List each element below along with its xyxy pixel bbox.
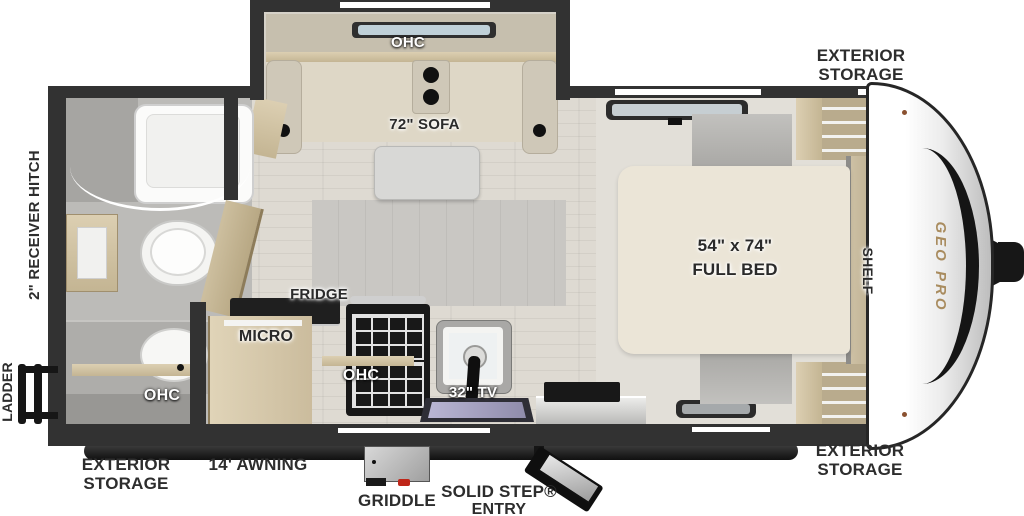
console-cupholder-1 [423,67,439,83]
kitchen-ohc-cabinet [322,356,414,366]
ladder-rung-bottom [18,412,58,419]
label-kitchen-ohc: OHC [333,367,389,385]
entry-grab-rail [544,382,620,402]
cap-marker-light-bottom [902,412,907,417]
bathroom-faucet [177,364,184,371]
label-tv: 32" TV [440,385,506,402]
label-griddle: GRIDDLE [352,491,442,510]
stove-handle [350,296,426,304]
label-ladder: LADDER [0,360,16,424]
label-entry-line2: ENTRY [437,501,561,516]
wall-rear [48,86,66,446]
sofa-console [412,60,450,114]
slideout-exterior-window-mark [340,2,490,8]
label-slideout-ohc: OHC [382,35,434,52]
cap-marker-light-top [902,110,907,115]
label-receiver-hitch: 2" RECEIVER HITCH [27,145,45,305]
label-shelf: SHELF [857,236,875,306]
label-fridge: FRIDGE [284,287,354,304]
slideout-wall-right [556,0,570,100]
medicine-cabinet-mirror [77,227,107,279]
griddle [364,446,430,482]
label-sofa: 72" SOFA [362,117,487,134]
griddle-burner-dot [372,460,376,464]
label-bathroom-ohc: OHC [134,387,190,405]
bedside-storage-top [692,114,792,168]
bathroom-wall-lower [190,302,206,424]
floorplan-canvas: GEO PRO OHC 72" SOFA OHC FRIDGE MICRO OH… [0,0,1024,516]
bathroom-wall-upper [224,86,238,200]
griddle-foot [366,478,386,486]
toilet-seat [150,228,206,276]
sofa-cupholder-right [533,124,546,137]
dinette-table [374,146,480,200]
label-bed-type: FULL BED [640,260,830,279]
label-micro: MICRO [230,328,302,346]
bedside-storage-bottom [700,352,792,404]
entry-door-mark [338,428,490,433]
stove-grate-top [352,314,424,360]
griddle-knob [398,479,410,486]
wall-top-rear-section [48,86,250,98]
microwave-top-mark [224,320,302,326]
label-entry-line1: SOLID STEP® [437,482,561,501]
front-window-mark [615,89,761,95]
label-bed-size: 54" x 74" [640,236,830,255]
geo-pro-logo: GEO PRO [927,192,949,342]
hitch-coupler [998,242,1024,282]
sofa-armrest-right [522,60,558,154]
ladder-rung-top [18,366,58,373]
label-awning: 14' AWNING [198,455,318,474]
bathroom-ohc-cabinet [72,364,194,376]
bedroom-window-tab [668,118,682,125]
floor-vent-inner [682,404,750,414]
door-side-window-mark [692,427,770,432]
kitchen-sink-basin [428,402,526,418]
wardrobe-top-door [796,96,823,160]
medicine-cabinet [66,214,118,292]
label-exterior-storage-rear: EXTERIOR STORAGE [76,455,176,493]
wardrobe-bottom-door [796,362,823,426]
slideout-ohc-cabinet [266,52,556,62]
console-cupholder-2 [423,89,439,105]
label-exterior-storage-front-bottom: EXTERIOR STORAGE [810,441,910,479]
label-exterior-storage-front-top: EXTERIOR STORAGE [806,46,916,84]
slideout-wall-left [250,0,264,100]
